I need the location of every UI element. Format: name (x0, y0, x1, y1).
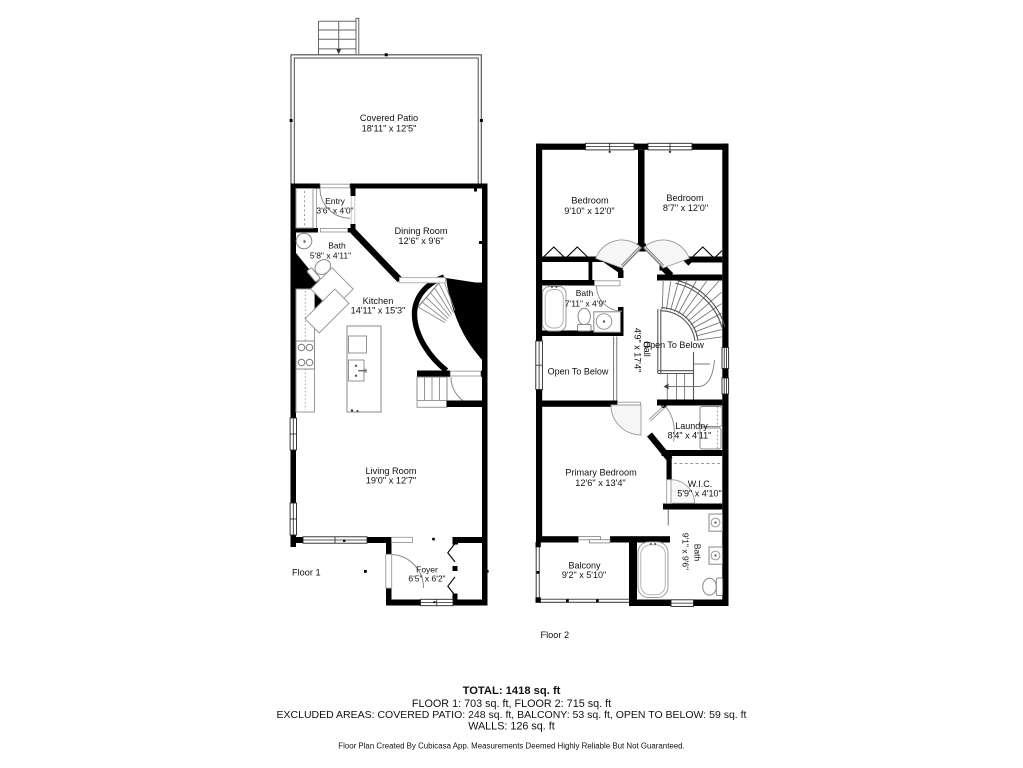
svg-text:Bath: Bath (693, 544, 703, 562)
svg-text:Open To Below: Open To Below (548, 367, 609, 377)
svg-text:FLOOR 1: 703 sq. ft, FLOOR 2:: FLOOR 1: 703 sq. ft, FLOOR 2: 715 sq. ft (412, 698, 611, 710)
svg-text:Covered Patio: Covered Patio (360, 113, 418, 123)
svg-text:9'2" x 5'10": 9'2" x 5'10" (562, 570, 606, 580)
svg-text:Balcony: Balcony (568, 561, 601, 571)
svg-text:Dining Room: Dining Room (394, 226, 447, 236)
svg-text:6'5" x 6'2": 6'5" x 6'2" (408, 574, 445, 584)
svg-text:14'11" x 15'3": 14'11" x 15'3" (351, 306, 406, 316)
svg-text:Primary Bedroom: Primary Bedroom (565, 468, 637, 478)
svg-text:Bath: Bath (576, 288, 594, 298)
svg-text:12'6" x 13'4": 12'6" x 13'4" (575, 478, 625, 488)
svg-text:4'9" x 17'4": 4'9" x 17'4" (633, 328, 643, 372)
svg-text:19'0" x 12'7": 19'0" x 12'7" (366, 476, 416, 486)
svg-text:Entry: Entry (325, 196, 346, 206)
svg-text:18'11" x 12'5": 18'11" x 12'5" (362, 124, 417, 134)
svg-text:Bath: Bath (328, 241, 346, 251)
svg-text:Floor 2: Floor 2 (541, 630, 570, 640)
svg-text:Laundry: Laundry (675, 421, 708, 431)
svg-text:WALLS: 126 sq. ft: WALLS: 126 sq. ft (468, 720, 555, 732)
svg-text:8'4" x 4'11": 8'4" x 4'11" (668, 431, 712, 441)
svg-text:W.I.C.: W.I.C. (688, 479, 713, 489)
svg-text:5'9" x 4'10": 5'9" x 4'10" (677, 489, 721, 499)
svg-text:7'11" x 4'9": 7'11" x 4'9" (565, 299, 606, 309)
svg-text:TOTAL: 1418 sq. ft: TOTAL: 1418 sq. ft (463, 685, 561, 697)
svg-text:EXCLUDED AREAS: COVERED PATIO:: EXCLUDED AREAS: COVERED PATIO: 248 sq. f… (277, 709, 747, 721)
svg-text:Hall: Hall (642, 341, 652, 357)
svg-text:Living Room: Living Room (365, 466, 416, 476)
svg-text:Kitchen: Kitchen (363, 296, 394, 306)
svg-text:9'10" x 12'0": 9'10" x 12'0" (564, 206, 614, 216)
svg-text:Bedroom: Bedroom (666, 193, 704, 203)
svg-text:3'6" x 4'0": 3'6" x 4'0" (316, 206, 353, 216)
svg-text:8'7" x 12'0": 8'7" x 12'0" (663, 203, 708, 213)
svg-text:5'8" x 4'11": 5'8" x 4'11" (310, 251, 351, 261)
svg-text:Floor Plan Created By Cubicasa: Floor Plan Created By Cubicasa App. Meas… (338, 742, 685, 751)
svg-text:Floor 1: Floor 1 (292, 568, 321, 578)
svg-text:12'6" x 9'6": 12'6" x 9'6" (398, 236, 443, 246)
svg-text:Bedroom: Bedroom (571, 196, 609, 206)
svg-text:9'1" x 9'6": 9'1" x 9'6" (681, 533, 691, 570)
